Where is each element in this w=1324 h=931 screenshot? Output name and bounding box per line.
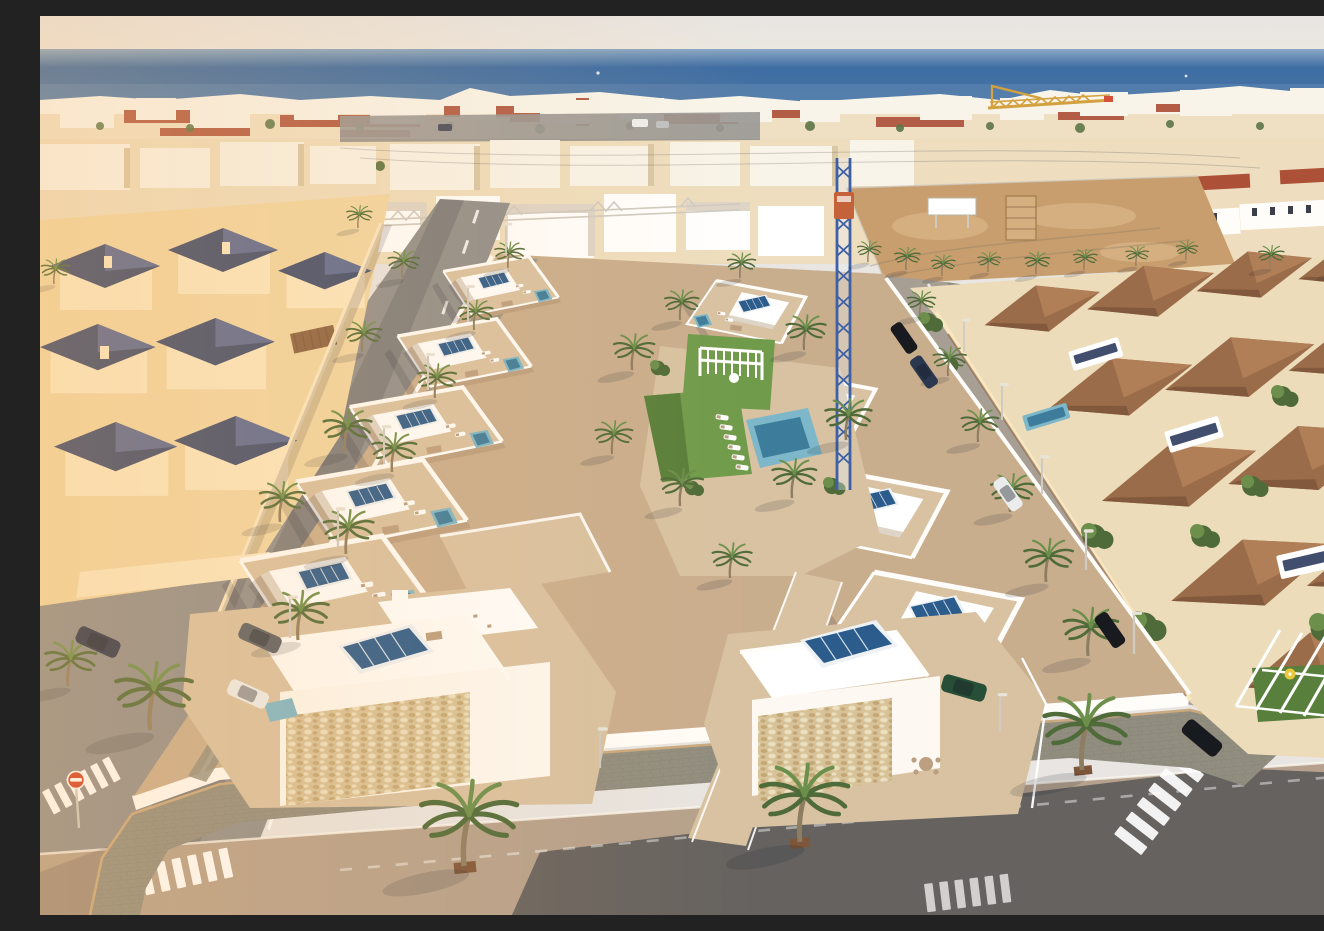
aerial-photo-canvas bbox=[40, 16, 1324, 915]
aerial-photo: Sunset aerial drone view of a new-build … bbox=[40, 16, 1324, 915]
horizon-haze bbox=[40, 84, 1324, 139]
sunset-glow bbox=[40, 16, 1324, 915]
